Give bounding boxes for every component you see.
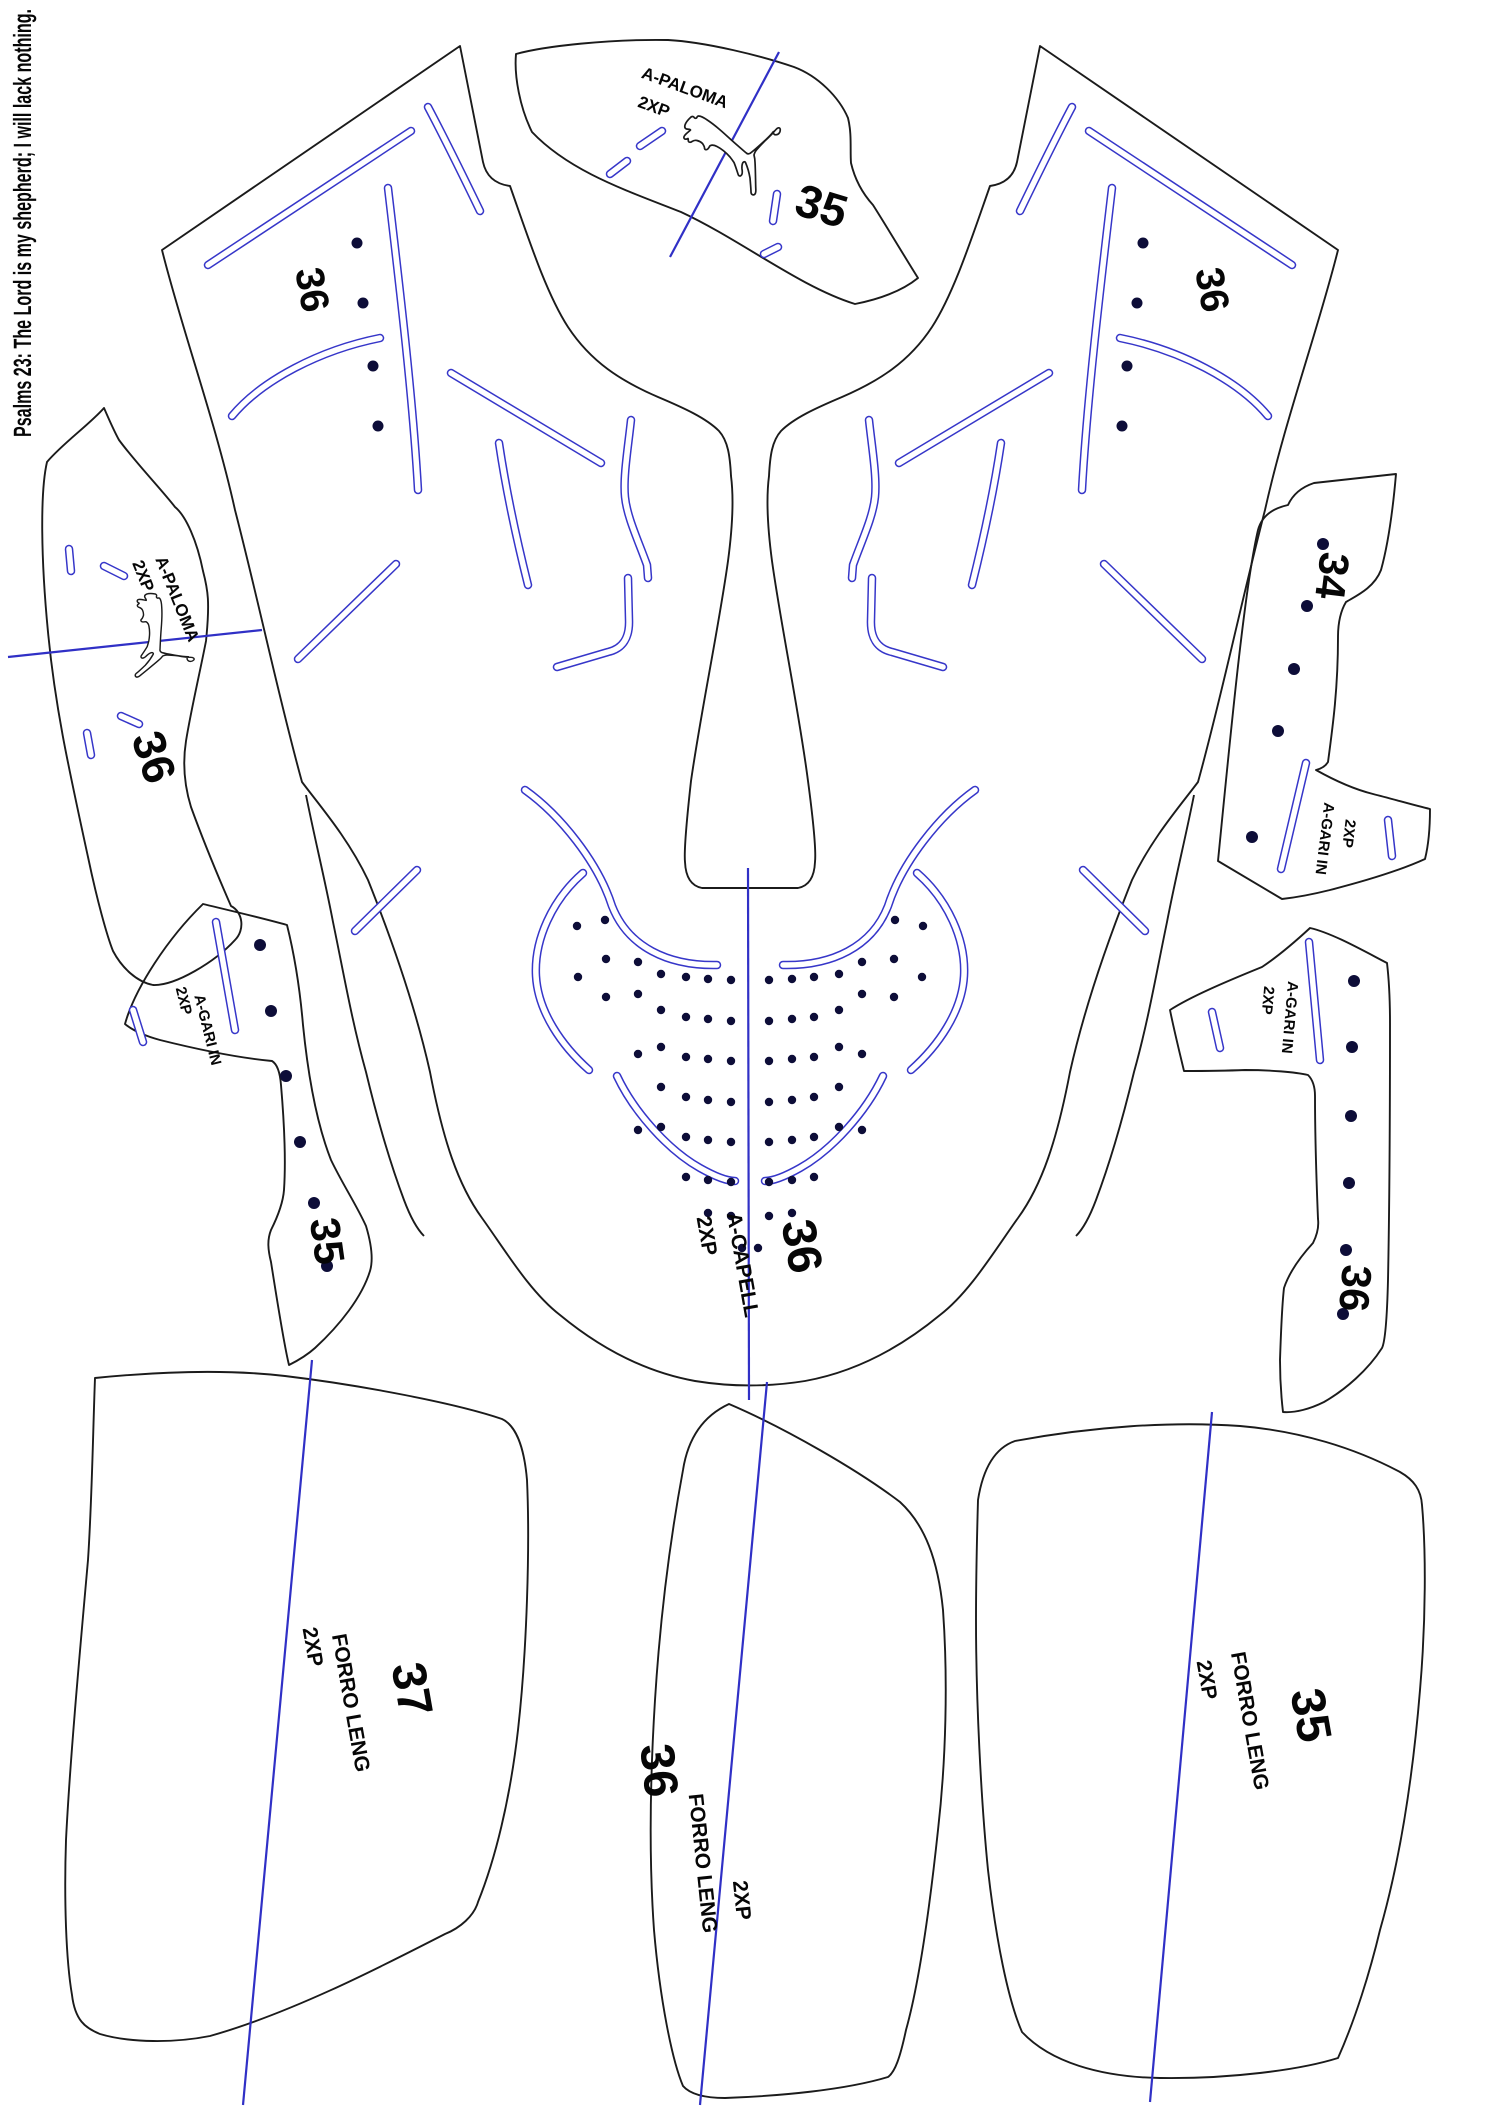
- svg-text:35: 35: [1280, 1684, 1341, 1746]
- svg-text:34: 34: [1306, 550, 1358, 603]
- svg-text:36: 36: [771, 1215, 832, 1277]
- svg-text:37: 37: [381, 1658, 442, 1720]
- svg-text:36: 36: [1186, 264, 1237, 315]
- svg-text:35: 35: [301, 1215, 354, 1268]
- svg-text:36: 36: [629, 1741, 687, 1800]
- svg-text:Psalms 23: The Lord is my shep: Psalms 23: The Lord is my shepherd; I wi…: [9, 9, 37, 437]
- svg-text:2XP: 2XP: [1258, 986, 1277, 1016]
- svg-text:2XP: 2XP: [728, 1879, 755, 1921]
- svg-text:36: 36: [1330, 1263, 1381, 1314]
- svg-text:2XP: 2XP: [1338, 818, 1358, 848]
- svg-text:36: 36: [286, 264, 337, 315]
